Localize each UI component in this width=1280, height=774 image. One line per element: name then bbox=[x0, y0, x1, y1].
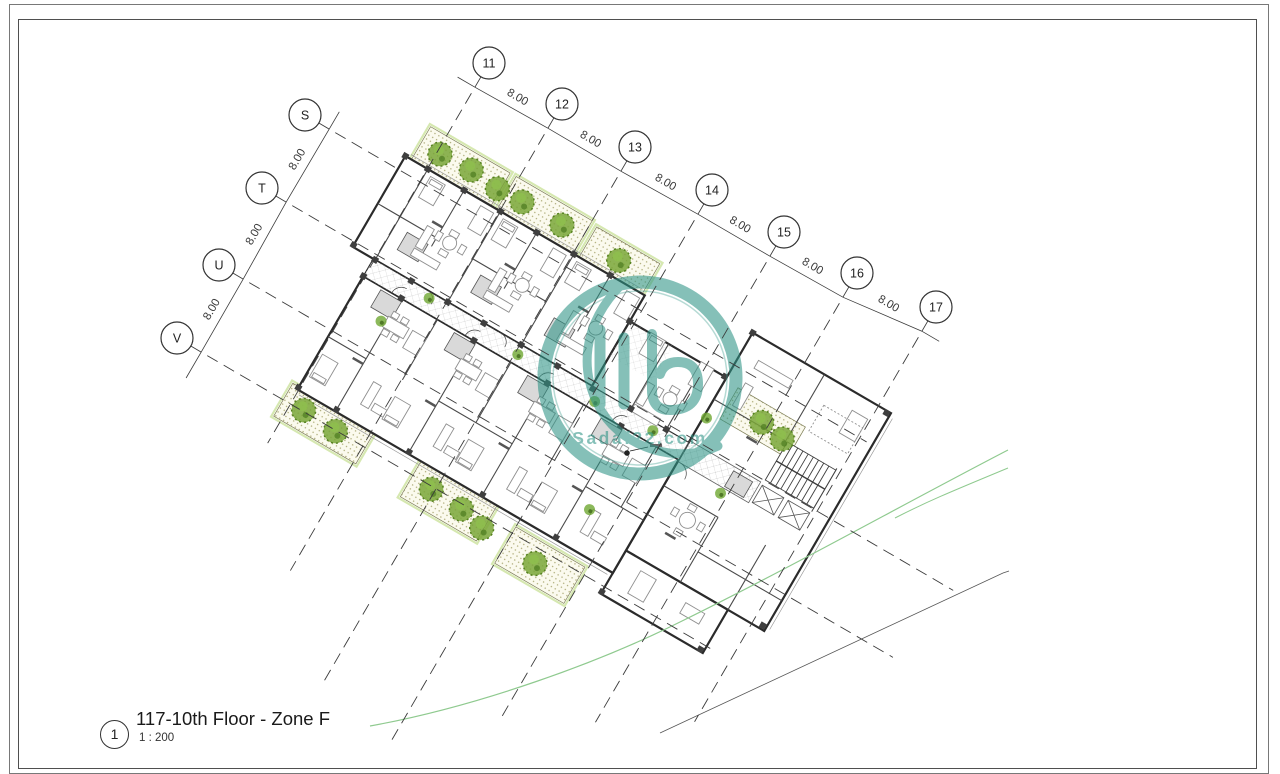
dimension-label: 8.00 bbox=[578, 129, 603, 151]
watermark-text: Sadaf22.com bbox=[572, 428, 707, 448]
green-contour-branch bbox=[895, 468, 1008, 518]
dimension-label: 8.00 bbox=[244, 222, 266, 247]
grid-bubble-label: 13 bbox=[628, 141, 642, 155]
floor-plan-drawing: Sadaf22.com 8.008.008.008.008.008.008.00… bbox=[0, 0, 1280, 759]
drawing-scale: 1 : 200 bbox=[139, 732, 174, 744]
dimension-label: 8.00 bbox=[653, 172, 678, 194]
grid-bubble-label: 11 bbox=[483, 57, 496, 71]
dimension-label: 8.00 bbox=[727, 214, 752, 236]
grid-bubble-label: 17 bbox=[929, 301, 943, 315]
dimension-label: 8.00 bbox=[287, 147, 309, 172]
dimension-label: 8.00 bbox=[800, 256, 825, 278]
grid-bubble-label: V bbox=[173, 332, 182, 346]
dimension-label: 8.00 bbox=[201, 297, 223, 322]
grid-bubble-label: 15 bbox=[777, 226, 791, 240]
detail-number-bubble: 1 bbox=[100, 720, 129, 749]
grid-bubble-label: 12 bbox=[555, 98, 569, 112]
dimension-label: 8.00 bbox=[876, 293, 901, 315]
grid-bubble-label: S bbox=[301, 109, 309, 123]
building-footprint bbox=[247, 120, 903, 701]
drawing-title: 117-10th Floor - Zone F bbox=[136, 708, 330, 730]
grid-bubble-label: 16 bbox=[850, 267, 864, 281]
grid-bubble-label: U bbox=[214, 259, 223, 273]
grid-bubble-label: 14 bbox=[705, 184, 719, 198]
detail-number: 1 bbox=[111, 726, 119, 742]
grid-bubble-label: T bbox=[258, 182, 266, 196]
dimension-label: 8.00 bbox=[505, 87, 530, 109]
